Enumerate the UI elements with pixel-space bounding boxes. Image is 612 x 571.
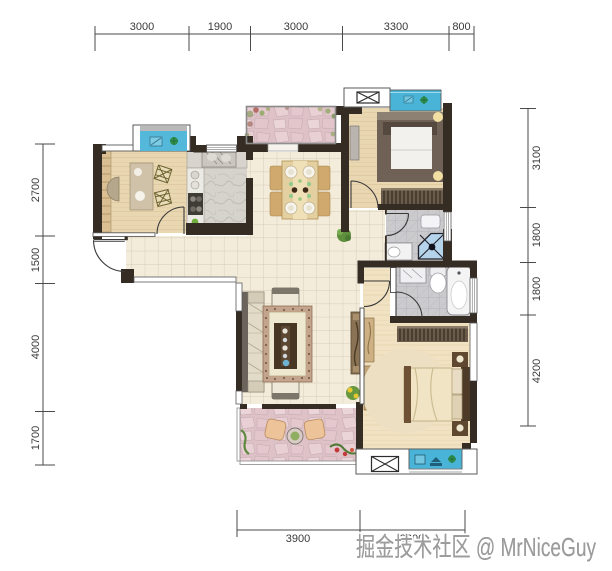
svg-text:1900: 1900 xyxy=(208,21,232,33)
svg-text:3100: 3100 xyxy=(531,146,543,170)
svg-text:3300: 3300 xyxy=(384,21,408,33)
svg-text:4200: 4200 xyxy=(531,359,543,383)
svg-text:3000: 3000 xyxy=(130,21,154,33)
svg-text:1800: 1800 xyxy=(531,277,543,301)
svg-text:1800: 1800 xyxy=(531,223,543,247)
svg-text:3900: 3900 xyxy=(286,533,310,545)
svg-text:800: 800 xyxy=(452,21,470,33)
svg-text:掘金技术社区 @ MrNiceGuy: 掘金技术社区 @ MrNiceGuy xyxy=(356,532,596,562)
svg-text:4000: 4000 xyxy=(30,335,42,359)
svg-text:3000: 3000 xyxy=(284,21,308,33)
svg-text:1500: 1500 xyxy=(30,248,42,272)
svg-text:1700: 1700 xyxy=(30,426,42,450)
svg-text:2700: 2700 xyxy=(30,178,42,202)
